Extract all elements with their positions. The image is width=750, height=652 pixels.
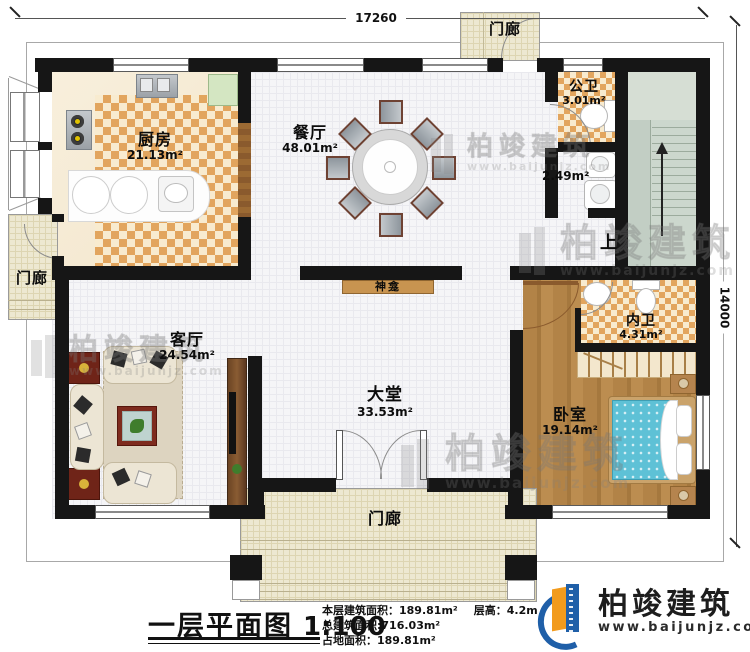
- kitchen-round-table: [72, 176, 110, 214]
- top-dimension-label: 17260: [346, 11, 406, 26]
- sofa-cushion: [131, 349, 148, 366]
- stair-treads: [652, 120, 696, 220]
- window: [563, 58, 603, 72]
- wall: [696, 58, 710, 395]
- bedroom-label: 卧室19.14m²: [530, 406, 610, 438]
- wall: [52, 214, 64, 222]
- wall: [603, 58, 710, 72]
- porch-bottom-label: 门廊: [350, 510, 420, 528]
- window: [696, 395, 710, 470]
- dim-tick: [729, 537, 740, 548]
- brand-name: 柏竣建筑: [598, 590, 750, 620]
- bay-eave-line: [8, 78, 9, 210]
- wall: [364, 58, 422, 72]
- kitchen-cabinet: [208, 74, 238, 106]
- bed-pillow: [676, 405, 692, 437]
- dining-chair: [379, 100, 403, 124]
- hall-label: 大堂33.53m²: [345, 386, 425, 419]
- area-stats: 本层建筑面积：189.81m² 层高：4.2m 总建筑面积:716.03m² 占…: [322, 604, 538, 649]
- nightstand-lamp: [678, 378, 689, 389]
- public-bath-label: 公卫3.01m²: [548, 79, 620, 108]
- wall: [189, 58, 277, 72]
- logo-tower-orange: [552, 587, 567, 632]
- dining-label: 餐厅48.01m²: [270, 124, 350, 156]
- brand-block: 柏竣建筑 www.baijunjz.com: [538, 582, 750, 642]
- sink-bowl: [164, 183, 188, 203]
- stove-burner-flame: [75, 119, 80, 124]
- bay-window: [10, 150, 40, 198]
- corner-table-decor: [79, 363, 89, 373]
- dining-chair: [432, 156, 456, 180]
- dining-chair: [326, 156, 350, 180]
- porch-pillar-base: [232, 580, 260, 600]
- hall-door-leaf: [420, 430, 427, 480]
- dim-tick: [697, 6, 708, 17]
- stair-landing: [628, 72, 696, 120]
- stove-burner-flame: [75, 136, 80, 141]
- wall: [537, 58, 563, 72]
- ensuite-label: 内卫4.31m²: [603, 313, 679, 342]
- porch-top-label: 门廊: [475, 21, 535, 38]
- stair-lower-flight: [628, 120, 651, 268]
- right-dimension-line: [736, 25, 737, 547]
- wall: [505, 505, 552, 519]
- tv-screen: [229, 392, 236, 454]
- story-height-stat: 层高：4.2m: [474, 604, 538, 619]
- total-area-stat: 总建筑面积:716.03m²: [322, 619, 440, 634]
- wall: [38, 198, 52, 214]
- utility-label: 2.49m²: [542, 170, 594, 184]
- bed-pillow: [676, 443, 692, 475]
- brand-logo-icon: [538, 582, 590, 642]
- porch-left-steps: [8, 292, 56, 318]
- kitchen-sliding-door: [238, 123, 251, 217]
- nightstand-lamp: [678, 490, 689, 501]
- plant: [232, 464, 242, 474]
- wall: [575, 343, 696, 352]
- title-underline-thin: [148, 643, 320, 644]
- wall: [55, 280, 69, 519]
- shrine-label: 神龛: [342, 281, 434, 294]
- dining-chair: [379, 213, 403, 237]
- wall: [510, 330, 523, 505]
- porch-bottom-line: [240, 540, 535, 541]
- porch-pillar-right: [505, 555, 537, 580]
- floor-area-stat: 本层建筑面积：189.81m²: [322, 604, 458, 619]
- stats-row-2: 总建筑面积:716.03m²: [322, 619, 538, 634]
- kitchen-label: 厨房21.13m²: [115, 131, 195, 163]
- window: [422, 58, 488, 72]
- living-label: 客厅24.54m²: [147, 331, 227, 363]
- plant: [130, 419, 144, 433]
- shrine-wall: [300, 266, 462, 280]
- dim-tick: [729, 15, 740, 26]
- wall: [238, 217, 251, 266]
- window: [552, 505, 668, 519]
- footprint-stat: 占地面积：189.81m²: [322, 634, 436, 649]
- wall: [575, 308, 581, 346]
- title-underline: [148, 637, 320, 640]
- hall-door-leaf: [336, 430, 343, 480]
- toilet-bowl: [636, 288, 656, 314]
- sink-bowl: [140, 78, 153, 92]
- wall: [55, 505, 95, 519]
- right-dimension-label: 14000: [717, 282, 732, 334]
- bay-window: [10, 92, 40, 142]
- brand-url: www.baijunjz.com: [598, 620, 750, 635]
- dim-tick: [9, 6, 20, 17]
- window: [95, 505, 210, 519]
- stair-arrow-line: [661, 152, 663, 236]
- wall: [38, 142, 52, 150]
- window: [113, 58, 189, 72]
- stairs-up-label: 上: [597, 234, 621, 254]
- window: [277, 58, 364, 72]
- dining-table-center: [384, 161, 396, 173]
- porch-bottom-line: [240, 549, 535, 550]
- wall: [488, 58, 503, 72]
- stair-arrow-head: [656, 142, 668, 154]
- logo-tower-blue: [566, 584, 579, 632]
- stats-row-3: 占地面积：189.81m²: [322, 634, 538, 649]
- wall: [238, 72, 251, 123]
- sofa-cushion: [75, 447, 91, 463]
- porch-left-label: 门廊: [6, 270, 58, 287]
- porch-bottom-steps: [240, 576, 535, 600]
- wall: [510, 266, 710, 280]
- porch-pillar-base: [507, 580, 535, 600]
- corner-table-decor: [79, 479, 89, 489]
- porch-pillar-left: [230, 555, 262, 580]
- washing-machine-drum: [590, 184, 610, 204]
- wall: [38, 58, 52, 92]
- wall: [248, 356, 262, 505]
- wall: [668, 505, 710, 519]
- floor-plan-canvas: 17260 14000: [0, 0, 750, 652]
- sink-bowl: [157, 78, 170, 92]
- wall: [558, 142, 618, 152]
- kitchen-round-table: [110, 176, 148, 214]
- stats-row-1: 本层建筑面积：189.81m² 层高：4.2m: [322, 604, 538, 619]
- bedroom-door-leaf: [523, 281, 578, 285]
- wall: [52, 266, 251, 280]
